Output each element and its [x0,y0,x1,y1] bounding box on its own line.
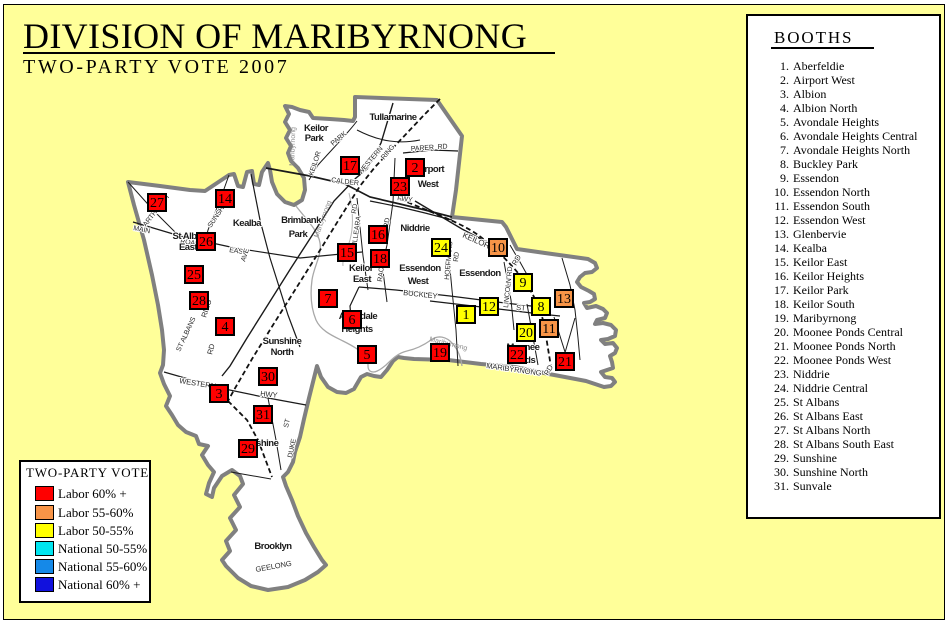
svg-text:16: 16 [371,228,385,243]
svg-text:Brimbank: Brimbank [281,215,322,226]
svg-text:Park: Park [289,229,309,240]
svg-text:6: 6 [349,313,356,328]
svg-text:21: 21 [558,355,572,370]
svg-text:HWY: HWY [260,389,278,400]
svg-text:East: East [353,274,372,285]
svg-text:17: 17 [343,159,357,174]
svg-text:RD: RD [351,203,359,214]
svg-text:10: 10 [491,241,505,256]
svg-text:West: West [408,276,430,287]
svg-text:ST: ST [516,303,526,313]
svg-text:31: 31 [256,408,270,423]
svg-text:Maribyrnong: Maribyrnong [289,127,297,166]
svg-text:20: 20 [519,326,533,341]
svg-text:23: 23 [393,180,407,195]
svg-text:Essendon: Essendon [399,263,441,274]
svg-text:12: 12 [482,300,496,315]
svg-text:North: North [271,347,295,358]
svg-text:East: East [179,242,198,253]
svg-text:9: 9 [520,276,527,291]
svg-text:1: 1 [463,308,470,323]
svg-text:Kealba: Kealba [233,218,262,229]
svg-text:30: 30 [261,370,275,385]
svg-text:Essendon: Essendon [459,268,501,279]
svg-text:5: 5 [364,348,371,363]
svg-text:18: 18 [373,252,387,267]
svg-text:West: West [418,179,440,190]
svg-text:26: 26 [199,235,213,250]
svg-text:27: 27 [150,196,164,211]
svg-text:29: 29 [241,442,255,457]
svg-text:2: 2 [412,161,419,176]
svg-text:Brooklyn: Brooklyn [254,541,292,552]
svg-text:7: 7 [325,292,332,307]
svg-text:15: 15 [340,246,354,261]
svg-text:Tullamarine: Tullamarine [369,112,416,123]
svg-text:24: 24 [434,241,448,256]
svg-text:22: 22 [510,348,524,363]
svg-text:Niddrie: Niddrie [400,223,429,234]
svg-text:Sunshine: Sunshine [263,336,302,347]
svg-text:19: 19 [433,346,447,361]
svg-text:11: 11 [542,322,555,337]
svg-text:4: 4 [222,320,229,335]
svg-text:Park: Park [305,133,325,144]
svg-text:RD: RD [453,252,461,263]
svg-text:28: 28 [192,294,206,309]
svg-text:3: 3 [216,387,223,402]
svg-text:14: 14 [218,192,232,207]
svg-text:8: 8 [538,300,545,315]
svg-text:25: 25 [187,268,201,283]
svg-text:13: 13 [557,292,571,307]
